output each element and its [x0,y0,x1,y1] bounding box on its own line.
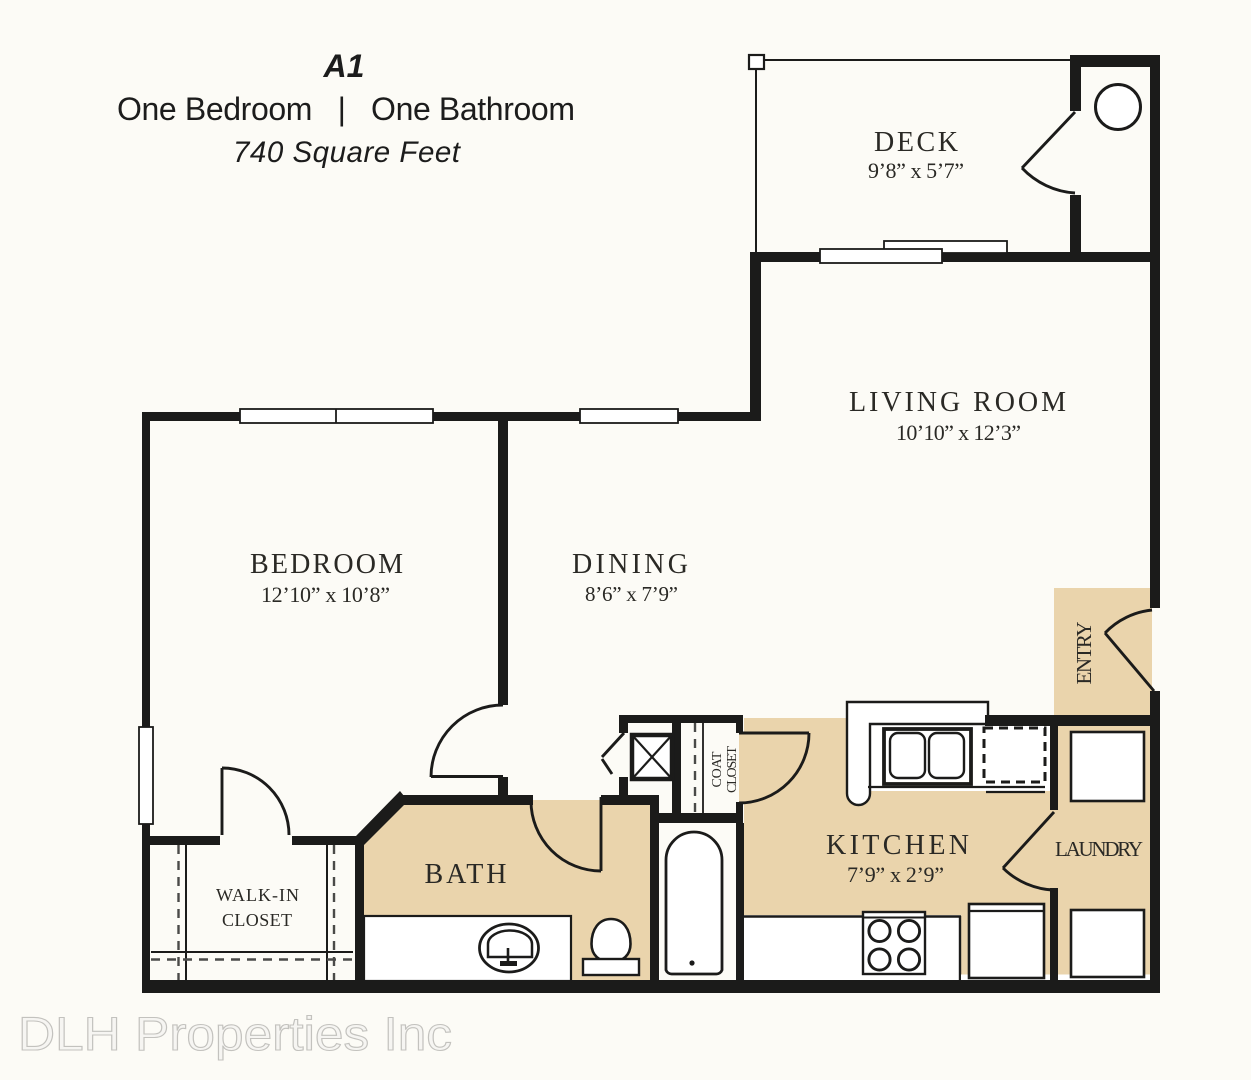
svg-text:12’10” x 10’8”: 12’10” x 10’8” [261,582,390,607]
svg-text:LIVING ROOM: LIVING ROOM [849,387,1066,418]
svg-text:DLH Properties Inc: DLH Properties Inc [18,1007,452,1060]
svg-text:COAT: COAT [710,751,725,787]
svg-text:9’8” x 5’7”: 9’8” x 5’7” [868,158,964,183]
svg-text:7’9” x 2’9”: 7’9” x 2’9” [847,862,944,887]
svg-text:A1: A1 [323,48,365,84]
svg-text:CLOSET: CLOSET [725,746,740,793]
svg-text:CLOSET: CLOSET [222,910,292,930]
svg-text:WALK-IN: WALK-IN [216,885,299,905]
svg-text:8’6” x 7’9”: 8’6” x 7’9” [585,582,678,606]
svg-text:LAUNDRY: LAUNDRY [1055,837,1143,861]
svg-text:BATH: BATH [425,859,507,890]
svg-text:10’10” x 12’3”: 10’10” x 12’3” [896,420,1021,445]
svg-text:ENTRY: ENTRY [1072,622,1096,685]
svg-text:One Bedroom | One Bathroom: One Bedroom | One Bathroom [117,91,575,127]
svg-text:DECK: DECK [874,127,958,158]
svg-text:740 Square Feet: 740 Square Feet [233,136,462,169]
svg-text:BEDROOM: BEDROOM [250,549,403,580]
